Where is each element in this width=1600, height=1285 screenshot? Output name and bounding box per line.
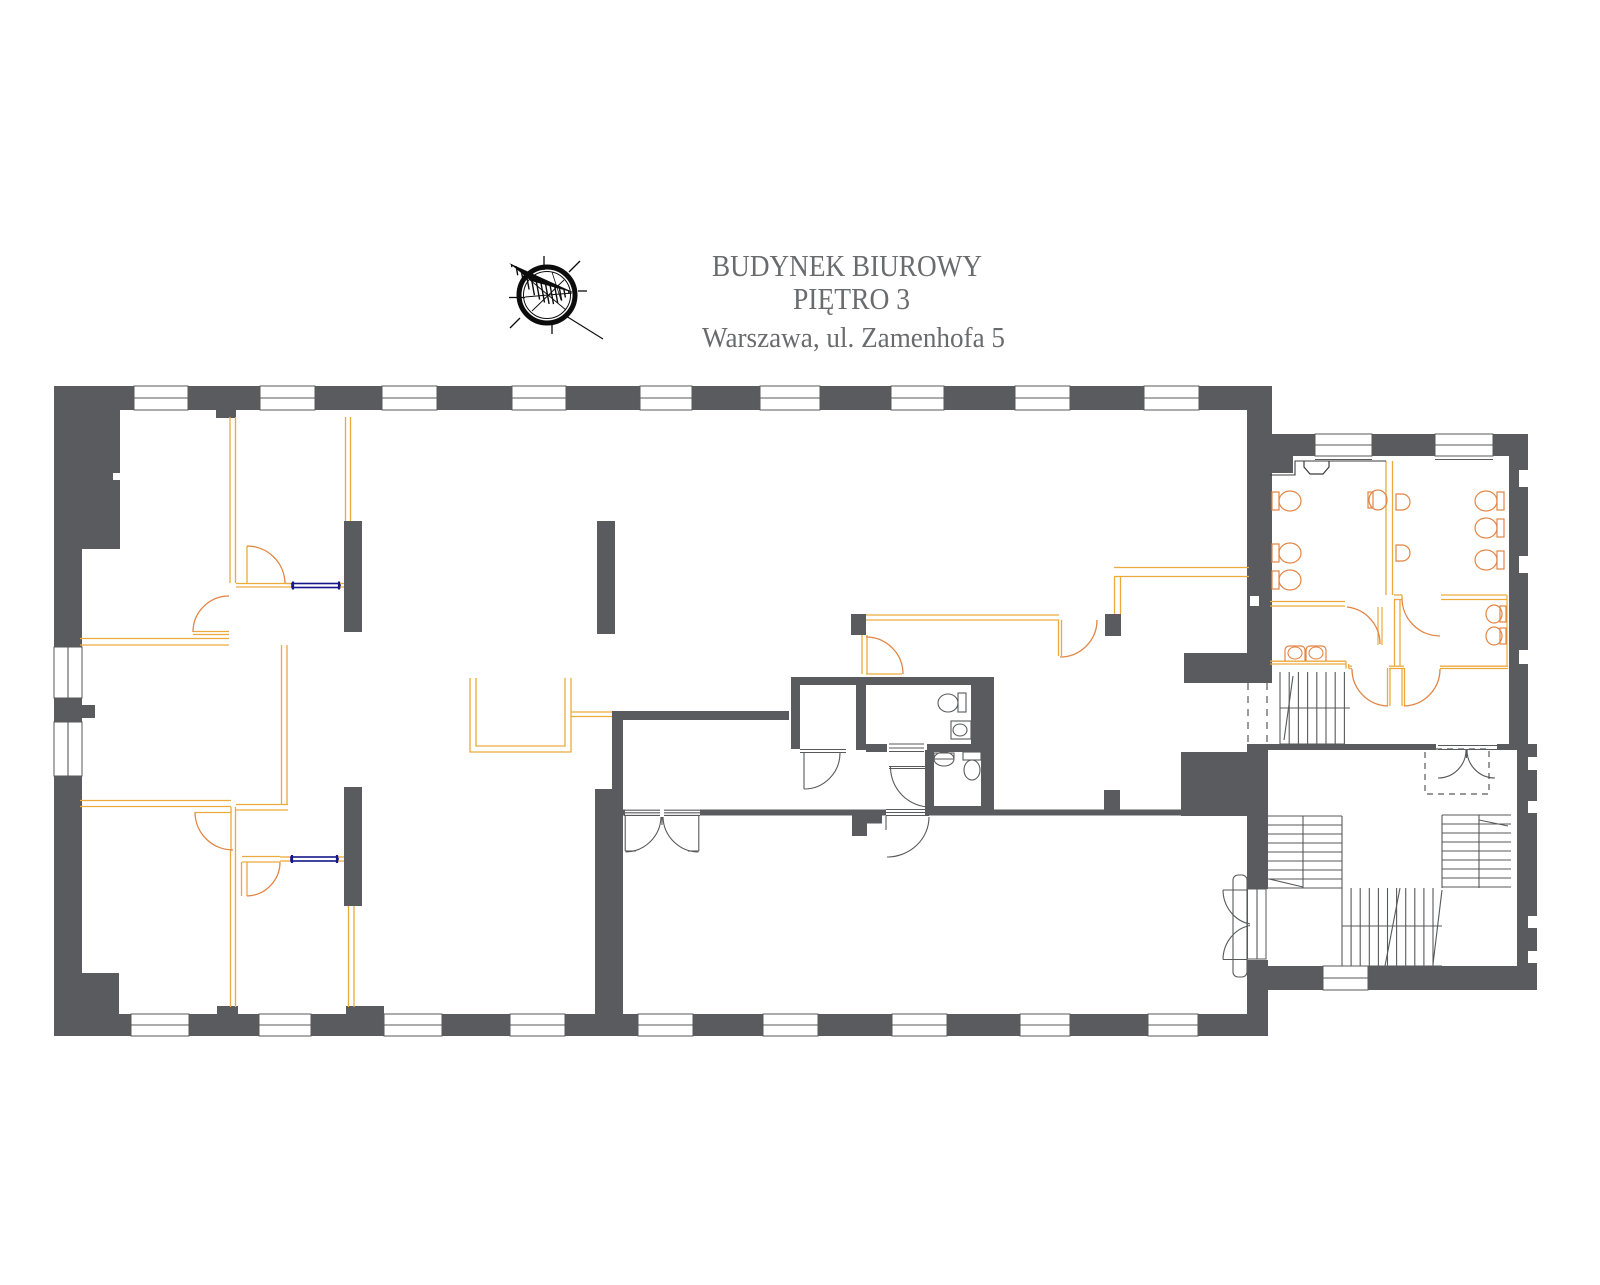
svg-text:BUDYNEK BIUROWY: BUDYNEK BIUROWY (712, 248, 982, 283)
svg-text:PIĘTRO 3: PIĘTRO 3 (793, 281, 910, 316)
svg-text:Warszawa, ul. Zamenhofa 5: Warszawa, ul. Zamenhofa 5 (702, 323, 1005, 354)
